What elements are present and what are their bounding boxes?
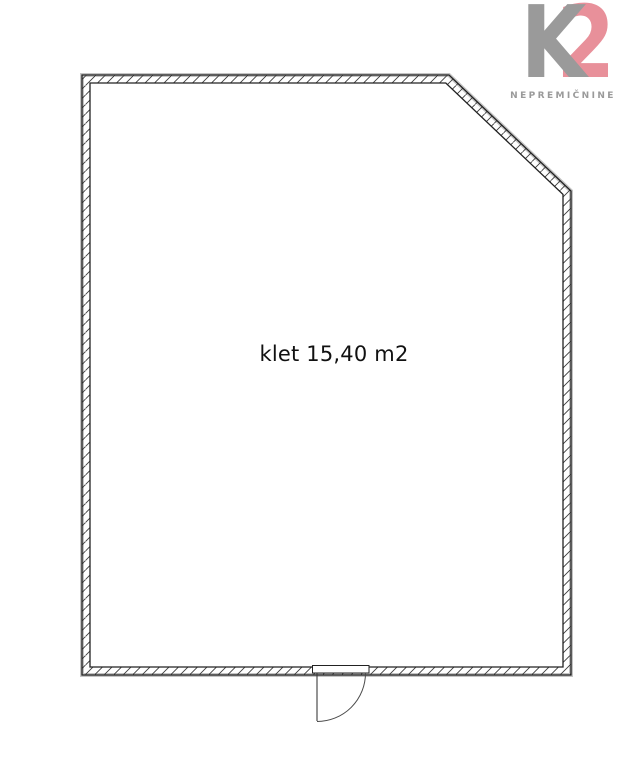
wall-shadow [82,75,571,675]
room-area-label: klet 15,40 m2 [259,342,408,366]
k2-logo: 2 K NEPREMIČNINE [509,12,617,101]
room-walls [82,75,571,675]
floorplan-drawing [0,0,624,768]
k2-logo-mark: 2 K [521,12,606,88]
door-frame [313,666,370,674]
floorplan-page: klet 15,40 m2 2 K NEPREMIČNINE [0,0,624,768]
logo-letter-k: K [521,0,587,93]
door-swing-arc [317,673,366,722]
